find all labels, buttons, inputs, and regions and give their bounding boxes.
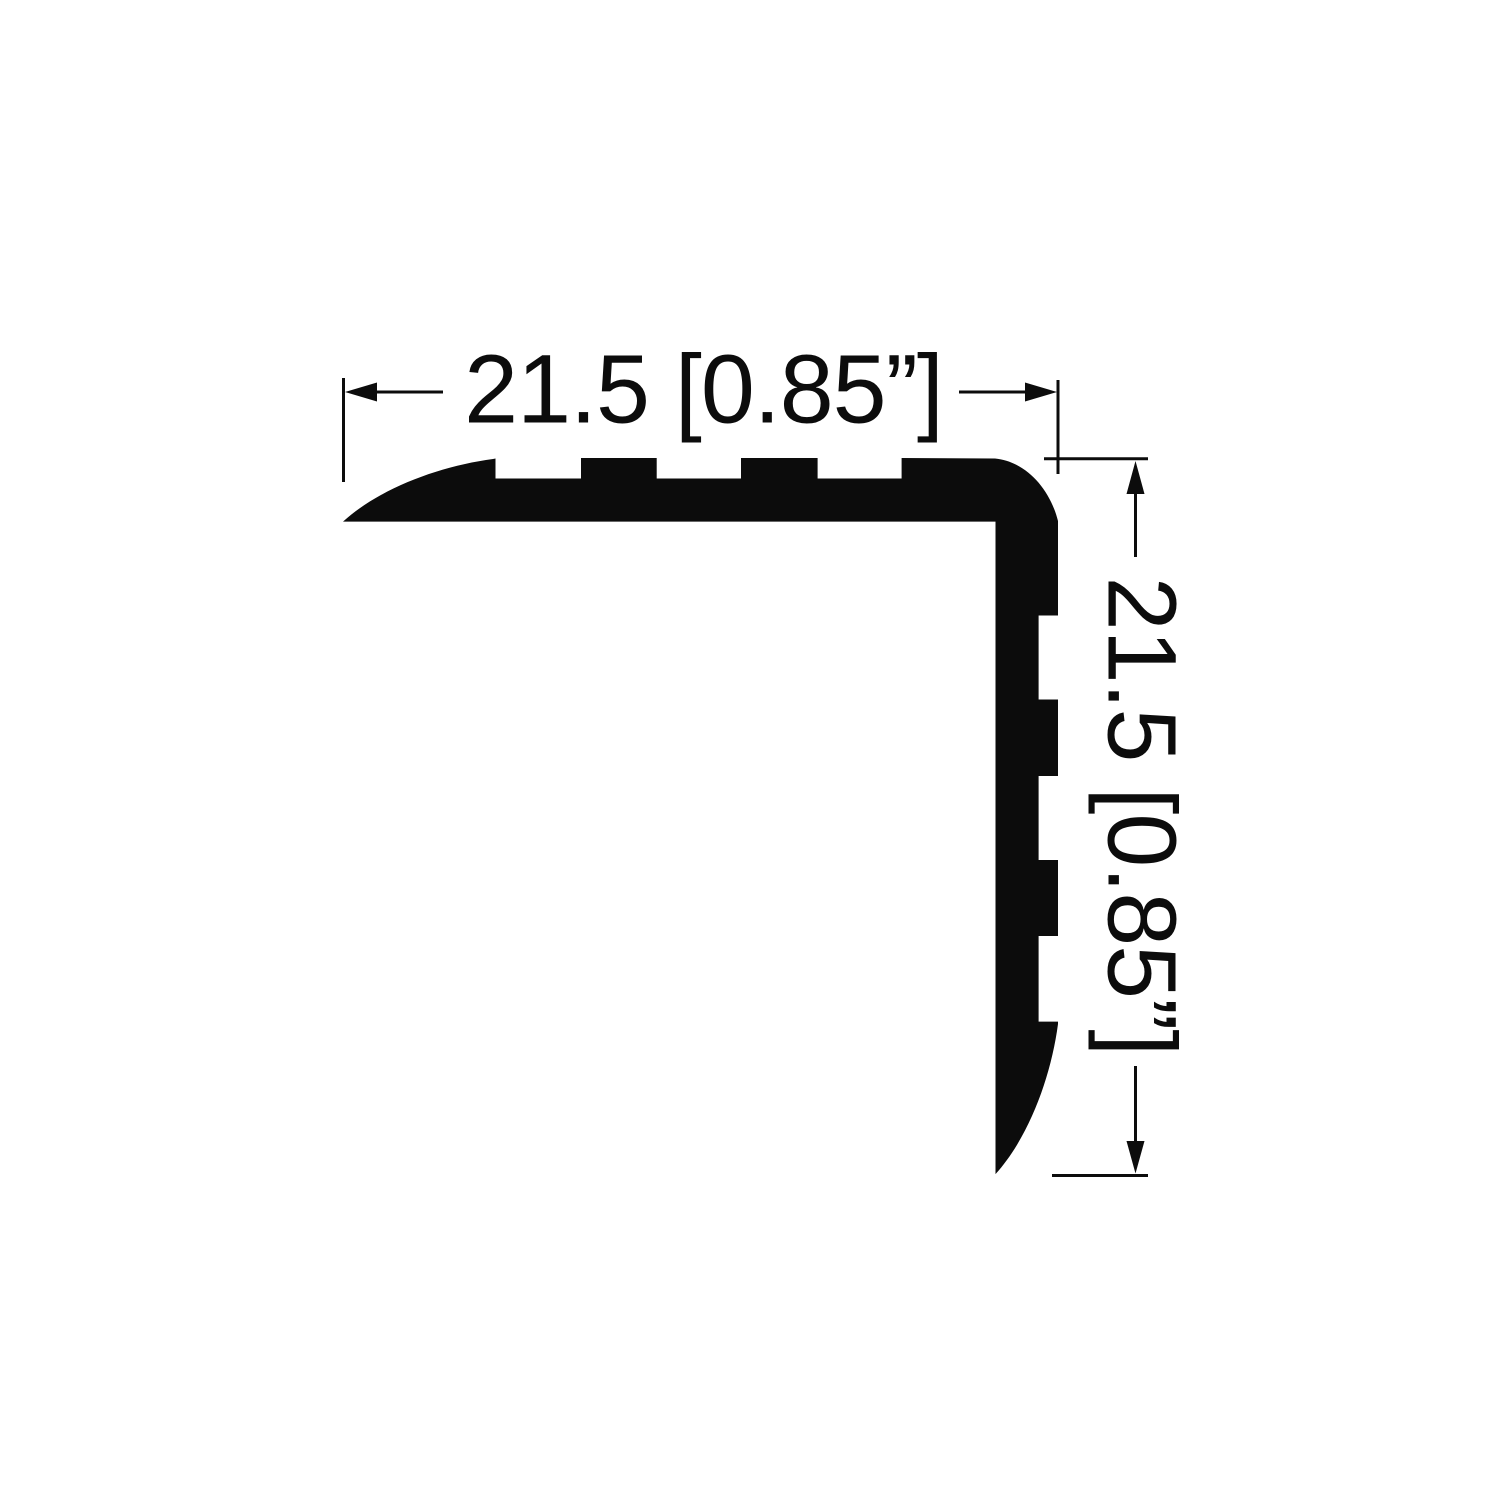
svg-text:21.5 [0.85”]: 21.5 [0.85”] bbox=[464, 335, 943, 444]
svg-text:21.5 [0.85”]: 21.5 [0.85”] bbox=[1088, 577, 1197, 1056]
